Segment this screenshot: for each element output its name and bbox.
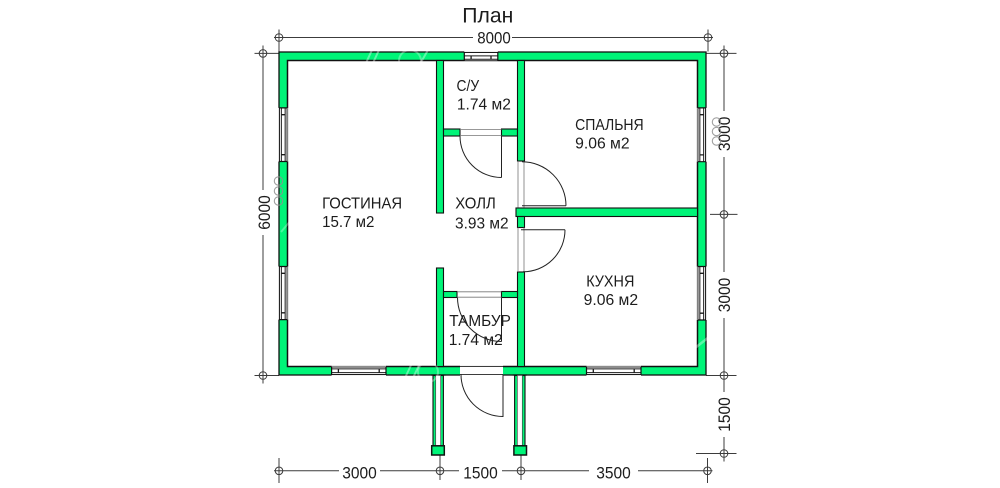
svg-text:3500: 3500: [596, 463, 631, 482]
svg-text:СПАЛЬНЯ: СПАЛЬНЯ: [575, 117, 644, 134]
svg-text:1500: 1500: [463, 463, 498, 482]
svg-text:ТАМБУР: ТАМБУР: [449, 313, 511, 330]
svg-text:9.06 м2: 9.06 м2: [575, 136, 630, 153]
svg-text:8000: 8000: [477, 29, 511, 48]
svg-text:1.74 м2: 1.74 м2: [449, 332, 503, 349]
svg-text:С/У: С/У: [457, 78, 480, 95]
svg-text:9.06 м2: 9.06 м2: [584, 292, 639, 309]
svg-text:1500: 1500: [715, 397, 734, 432]
svg-text:3000: 3000: [342, 463, 377, 482]
svg-text:15.7 м2: 15.7 м2: [322, 214, 374, 231]
svg-text:3.93 м2: 3.93 м2: [455, 216, 509, 233]
svg-text:6000: 6000: [255, 195, 274, 230]
svg-text:ХОЛЛ: ХОЛЛ: [455, 196, 496, 213]
svg-text:ГОСТИНАЯ: ГОСТИНАЯ: [322, 195, 402, 212]
svg-text:План: План: [462, 4, 513, 28]
svg-text:3000: 3000: [715, 117, 734, 152]
svg-text:3000: 3000: [715, 278, 734, 313]
svg-text:КУХНЯ: КУХНЯ: [586, 274, 634, 291]
svg-text:1.74 м2: 1.74 м2: [457, 96, 511, 113]
